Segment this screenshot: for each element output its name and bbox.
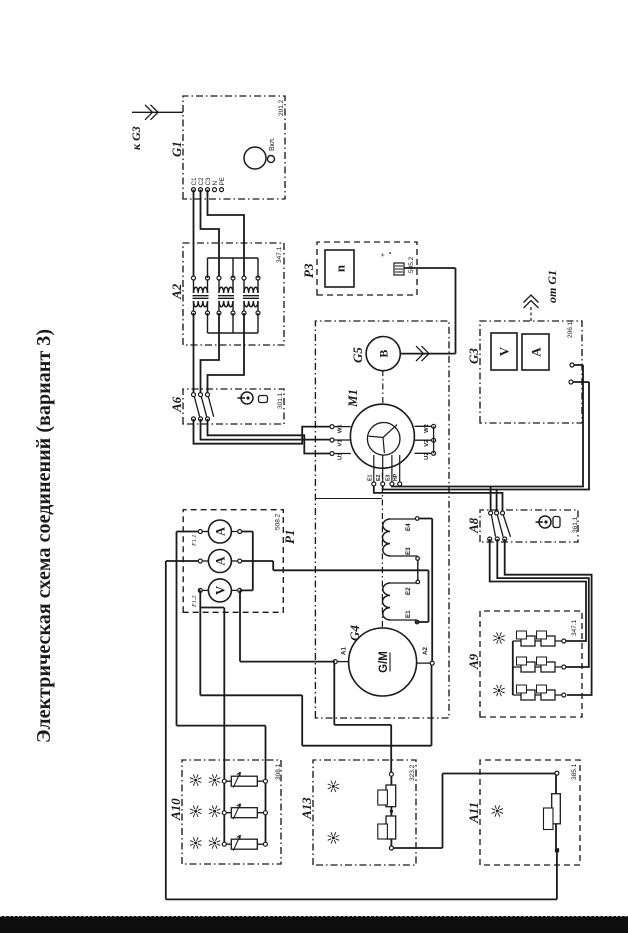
svg-text:Е1: Е1 (367, 475, 373, 481)
svg-text:+: + (380, 253, 387, 257)
svg-text:А: А (213, 527, 227, 536)
svg-text:от G1: от G1 (545, 270, 559, 303)
svg-text:Е2: Е2 (405, 587, 412, 595)
svg-text:508.2: 508.2 (275, 513, 282, 530)
svg-text:С3: С3 (205, 177, 212, 186)
svg-text:А: А (529, 347, 544, 357)
svg-text:M1: M1 (345, 389, 360, 408)
svg-text:Е3: Е3 (405, 547, 412, 555)
svg-text:206.1: 206.1 (567, 321, 574, 338)
svg-text:385.1: 385.1 (571, 763, 578, 780)
svg-text:к G3: к G3 (129, 126, 143, 150)
svg-text:С1: С1 (191, 177, 198, 186)
svg-text:Е4: Е4 (405, 523, 412, 531)
svg-text:505.2: 505.2 (408, 256, 415, 273)
svg-text:V: V (497, 346, 512, 356)
svg-text:G3: G3 (466, 348, 481, 364)
svg-text:F1.2: F1.2 (191, 595, 198, 608)
svg-text:G5: G5 (350, 347, 365, 363)
svg-text:A9: A9 (466, 653, 481, 670)
svg-text:A13: A13 (299, 797, 314, 820)
svg-text:G/M: G/M (378, 651, 390, 673)
svg-text:A11: A11 (466, 802, 481, 824)
svg-text:N: N (212, 181, 219, 186)
svg-text:P3: P3 (301, 263, 316, 278)
svg-text:361.1: 361.1 (572, 516, 579, 533)
svg-text:Электрическая схема соединений: Электрическая схема соединений (вариант … (33, 329, 55, 743)
svg-text:A8: A8 (466, 517, 481, 534)
svg-text:G4: G4 (347, 625, 362, 641)
svg-text:РЕ: РЕ (219, 177, 226, 185)
svg-text:P1: P1 (282, 530, 297, 544)
svg-text:308.1: 308.1 (275, 763, 282, 780)
svg-text:A6: A6 (169, 396, 184, 413)
svg-text:А1: А1 (341, 647, 348, 655)
svg-text:А: А (213, 556, 227, 565)
svg-text:F1.1: F1.1 (191, 534, 198, 547)
svg-text:U1: U1 (338, 452, 344, 460)
svg-text:347.1: 347.1 (571, 619, 578, 636)
svg-text:U2: U2 (424, 452, 430, 459)
svg-text:Вкл.: Вкл. (269, 137, 276, 151)
svg-text:С2: С2 (198, 177, 205, 186)
svg-text:A10: A10 (168, 798, 183, 821)
svg-text:Е2: Е2 (376, 475, 382, 481)
svg-text:323.2: 323.2 (409, 764, 416, 781)
svg-text:W1: W1 (338, 424, 344, 433)
svg-text:А2: А2 (422, 647, 429, 655)
svg-text:n: n (333, 264, 348, 272)
svg-text:G1: G1 (169, 141, 184, 157)
svg-text:V: V (213, 586, 227, 595)
svg-text:V2: V2 (424, 440, 430, 447)
svg-text:A2: A2 (169, 283, 184, 300)
svg-text:В: В (377, 350, 391, 358)
svg-text:W2: W2 (424, 424, 430, 433)
svg-text:Е3: Е3 (385, 475, 391, 481)
svg-text:V1: V1 (338, 439, 344, 447)
svg-text:Е1: Е1 (405, 610, 412, 618)
svg-text:НР: НР (393, 473, 399, 481)
svg-text:201.2: 201.2 (278, 99, 285, 116)
svg-text:301.1: 301.1 (277, 392, 284, 409)
svg-text:347.1: 347.1 (276, 246, 283, 263)
